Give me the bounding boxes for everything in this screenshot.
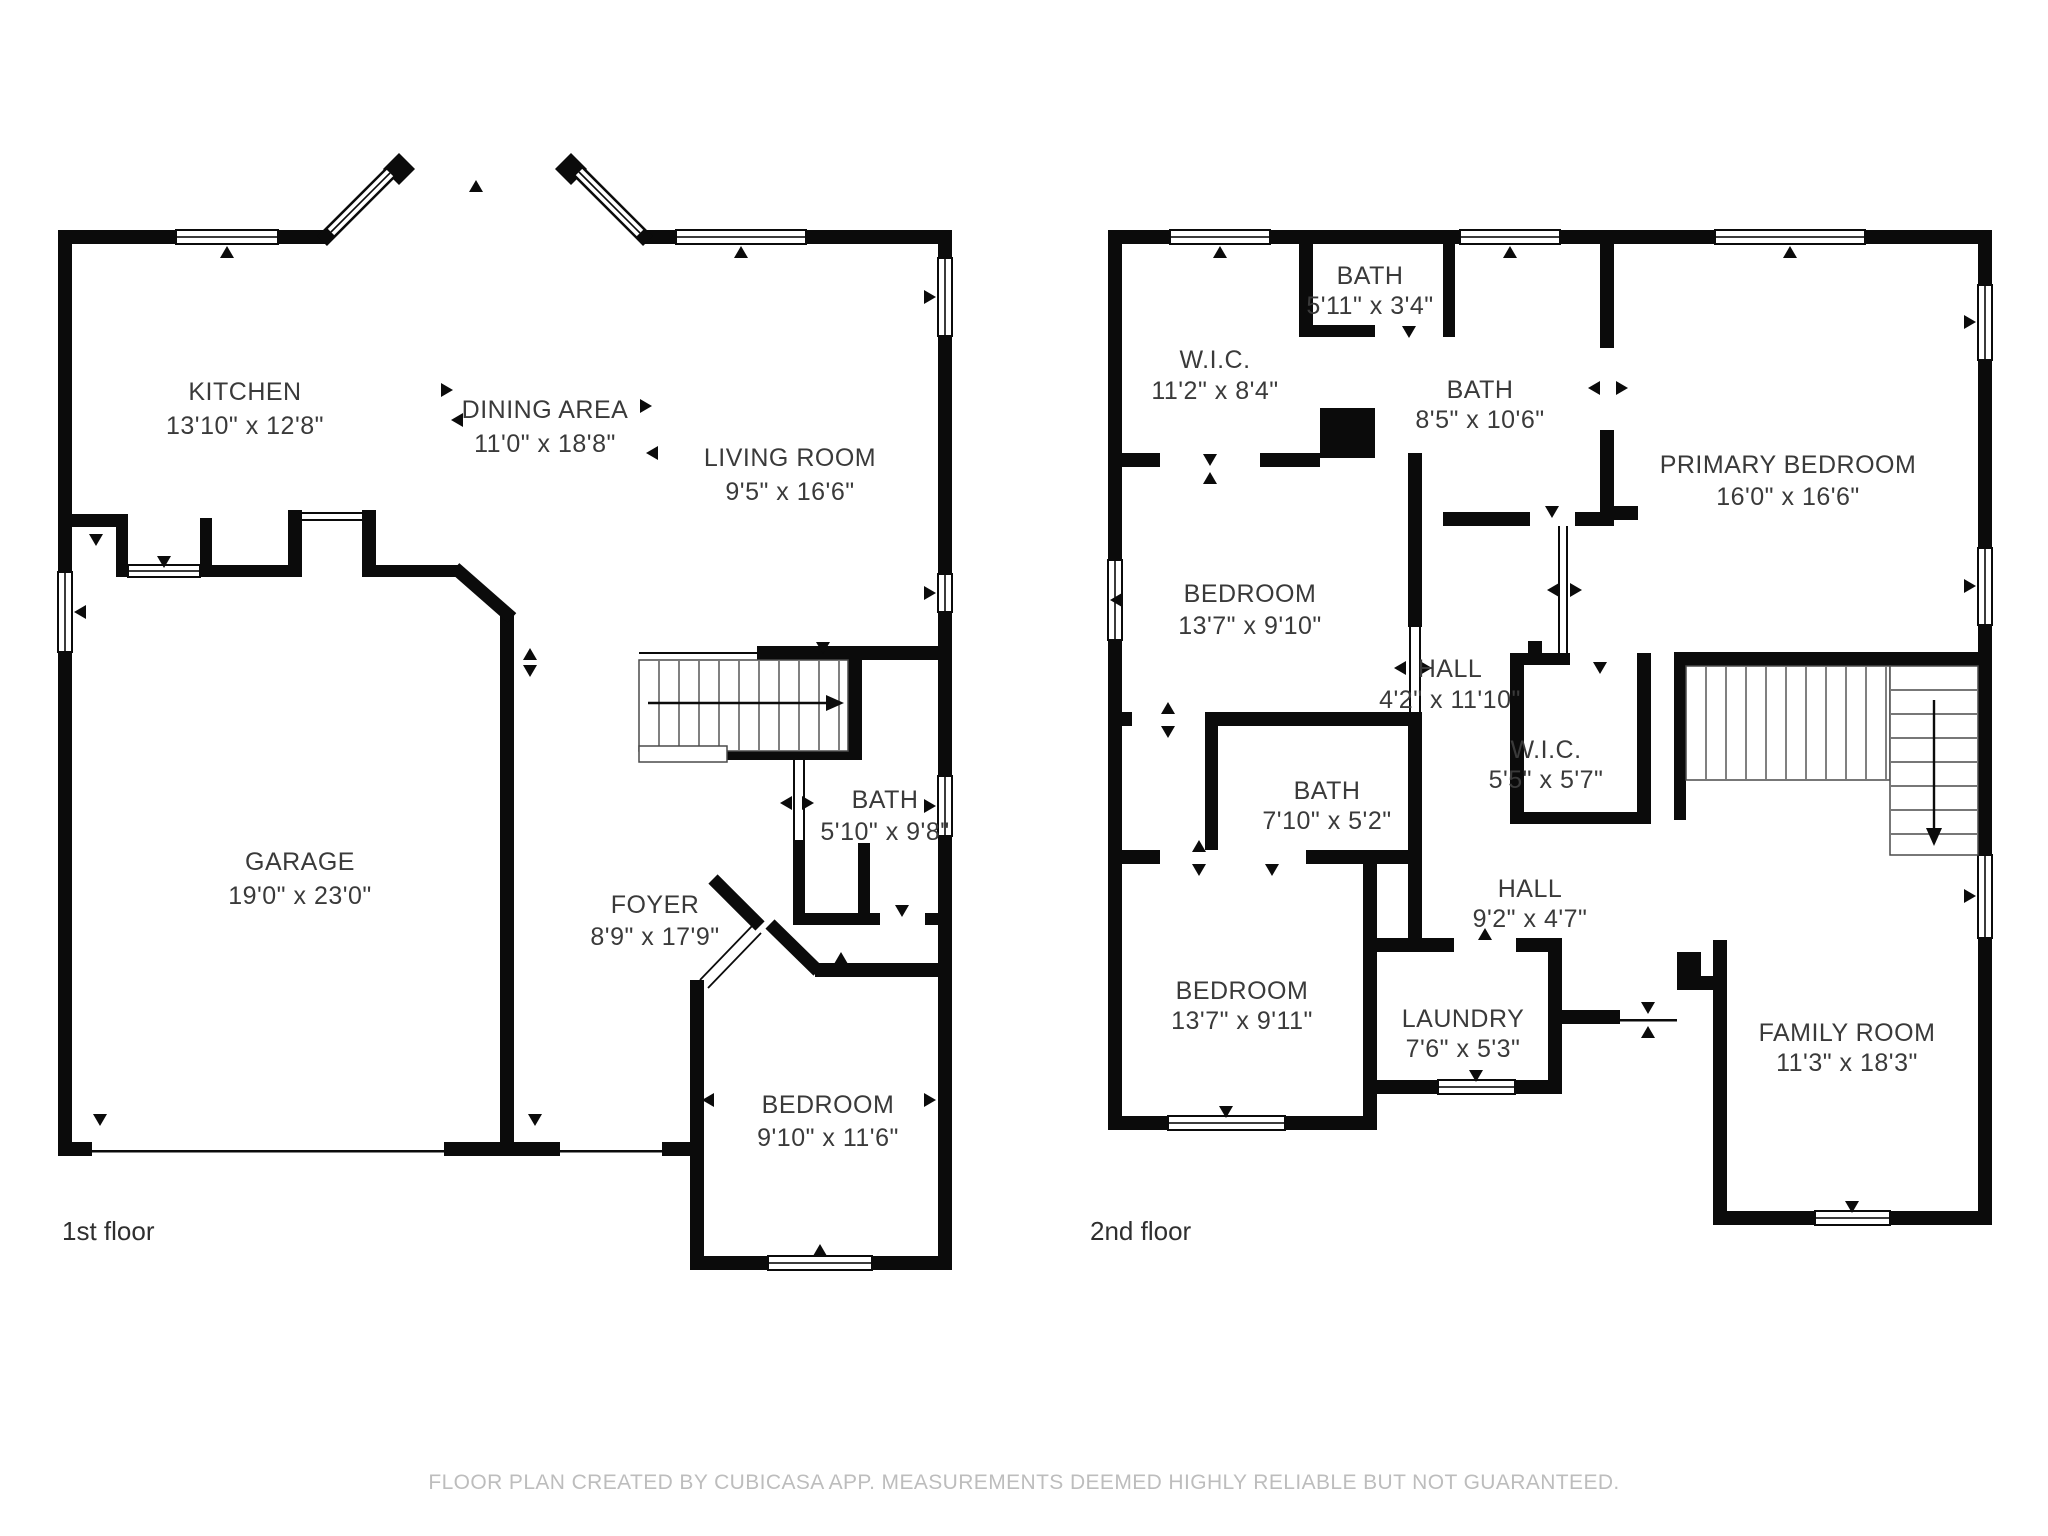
room-label-living-room: LIVING ROOM 9'5" x 16'6" bbox=[704, 444, 876, 506]
room-dims: 9'5" x 16'6" bbox=[725, 478, 854, 506]
room-name: BEDROOM bbox=[1184, 580, 1317, 608]
room-dims: 5'5" x 5'7" bbox=[1489, 766, 1604, 794]
room-name: BATH bbox=[852, 786, 919, 814]
room-dims: 11'0" x 18'8" bbox=[474, 430, 616, 458]
room-dims: 5'11" x 3'4" bbox=[1306, 292, 1433, 320]
room-dims: 4'2" x 11'10" bbox=[1379, 686, 1521, 714]
entry-door-line bbox=[560, 1150, 662, 1153]
floor1-room-labels: KITCHEN 13'10" x 12'8" DINING AREA 11'0"… bbox=[166, 378, 950, 1152]
room-name: KITCHEN bbox=[188, 378, 301, 406]
room-dims: 13'7" x 9'10" bbox=[1178, 612, 1322, 640]
room-label-bedroom-b: BEDROOM 13'7" x 9'11" bbox=[1171, 977, 1313, 1035]
room-name: BATH bbox=[1337, 262, 1404, 290]
room-dims: 8'5" x 10'6" bbox=[1415, 406, 1544, 434]
room-name: HALL bbox=[1418, 655, 1483, 683]
stair-landing bbox=[639, 746, 727, 762]
room-label-hall-lower: HALL 9'2" x 4'7" bbox=[1473, 875, 1588, 933]
floor-plan-page: KITCHEN 13'10" x 12'8" DINING AREA 11'0"… bbox=[0, 0, 2048, 1536]
room-label-family-room: FAMILY ROOM 11'3" x 18'3" bbox=[1759, 1019, 1936, 1077]
room-name: HALL bbox=[1498, 875, 1563, 903]
room-dims: 7'10" x 5'2" bbox=[1262, 807, 1391, 835]
room-name: LIVING ROOM bbox=[704, 444, 876, 472]
floor2-label: 2nd floor bbox=[1090, 1216, 1192, 1246]
room-dims: 9'10" x 11'6" bbox=[757, 1124, 899, 1152]
room-label-hall-upper: HALL 4'2" x 11'10" bbox=[1379, 655, 1521, 714]
floor2-stairs bbox=[1686, 666, 1978, 855]
room-name: FAMILY ROOM bbox=[1759, 1019, 1936, 1047]
floor1-label: 1st floor bbox=[62, 1216, 155, 1246]
room-name: BEDROOM bbox=[762, 1091, 895, 1119]
room-label-bath-f1: BATH 5'10" x 9'8" bbox=[820, 786, 949, 846]
room-name: BATH bbox=[1447, 376, 1514, 404]
room-dims: 7'6" x 5'3" bbox=[1406, 1035, 1521, 1063]
room-name: FOYER bbox=[611, 891, 700, 919]
room-label-foyer: FOYER 8'9" x 17'9" bbox=[590, 891, 719, 951]
room-label-kitchen: KITCHEN 13'10" x 12'8" bbox=[166, 378, 324, 440]
room-name: BATH bbox=[1294, 777, 1361, 805]
floor-plan-image: KITCHEN 13'10" x 12'8" DINING AREA 11'0"… bbox=[0, 0, 2048, 1536]
room-dims: 13'7" x 9'11" bbox=[1171, 1007, 1313, 1035]
room-name: GARAGE bbox=[245, 848, 355, 876]
room-label-dining-area: DINING AREA 11'0" x 18'8" bbox=[462, 396, 629, 458]
room-name: LAUNDRY bbox=[1402, 1005, 1525, 1033]
room-label-bath-top: BATH 5'11" x 3'4" bbox=[1306, 262, 1433, 320]
room-label-bedroom-f1: BEDROOM 9'10" x 11'6" bbox=[757, 1091, 899, 1152]
room-label-bath-upper: BATH 8'5" x 10'6" bbox=[1415, 376, 1544, 434]
room-label-wic-small: W.I.C. 5'5" x 5'7" bbox=[1489, 736, 1604, 794]
room-name: PRIMARY BEDROOM bbox=[1660, 451, 1917, 479]
room-name: BEDROOM bbox=[1176, 977, 1309, 1005]
room-name: W.I.C. bbox=[1510, 736, 1581, 764]
room-dims: 11'3" x 18'3" bbox=[1776, 1049, 1918, 1077]
room-label-laundry: LAUNDRY 7'6" x 5'3" bbox=[1402, 1005, 1525, 1063]
room-label-bedroom-a: BEDROOM 13'7" x 9'10" bbox=[1178, 580, 1322, 640]
room-dims: 8'9" x 17'9" bbox=[590, 923, 719, 951]
room-label-bath-middle: BATH 7'10" x 5'2" bbox=[1262, 777, 1391, 835]
room-dims: 19'0" x 23'0" bbox=[228, 882, 372, 910]
room-dims: 11'2" x 8'4" bbox=[1151, 377, 1278, 405]
room-dims: 9'2" x 4'7" bbox=[1473, 905, 1588, 933]
room-name: W.I.C. bbox=[1179, 346, 1250, 374]
room-label-wic-left: W.I.C. 11'2" x 8'4" bbox=[1151, 346, 1278, 405]
room-dims: 5'10" x 9'8" bbox=[820, 818, 949, 846]
disclaimer-text: FLOOR PLAN CREATED BY CUBICASA APP. MEAS… bbox=[428, 1471, 1619, 1494]
floor1-stairs bbox=[639, 652, 848, 762]
garage-door-line bbox=[92, 1150, 444, 1153]
room-name: DINING AREA bbox=[462, 396, 629, 424]
room-dims: 13'10" x 12'8" bbox=[166, 412, 324, 440]
room-dims: 16'0" x 16'6" bbox=[1716, 483, 1860, 511]
room-label-garage: GARAGE 19'0" x 23'0" bbox=[228, 848, 372, 910]
room-label-primary-bedroom: PRIMARY BEDROOM 16'0" x 16'6" bbox=[1660, 451, 1917, 511]
